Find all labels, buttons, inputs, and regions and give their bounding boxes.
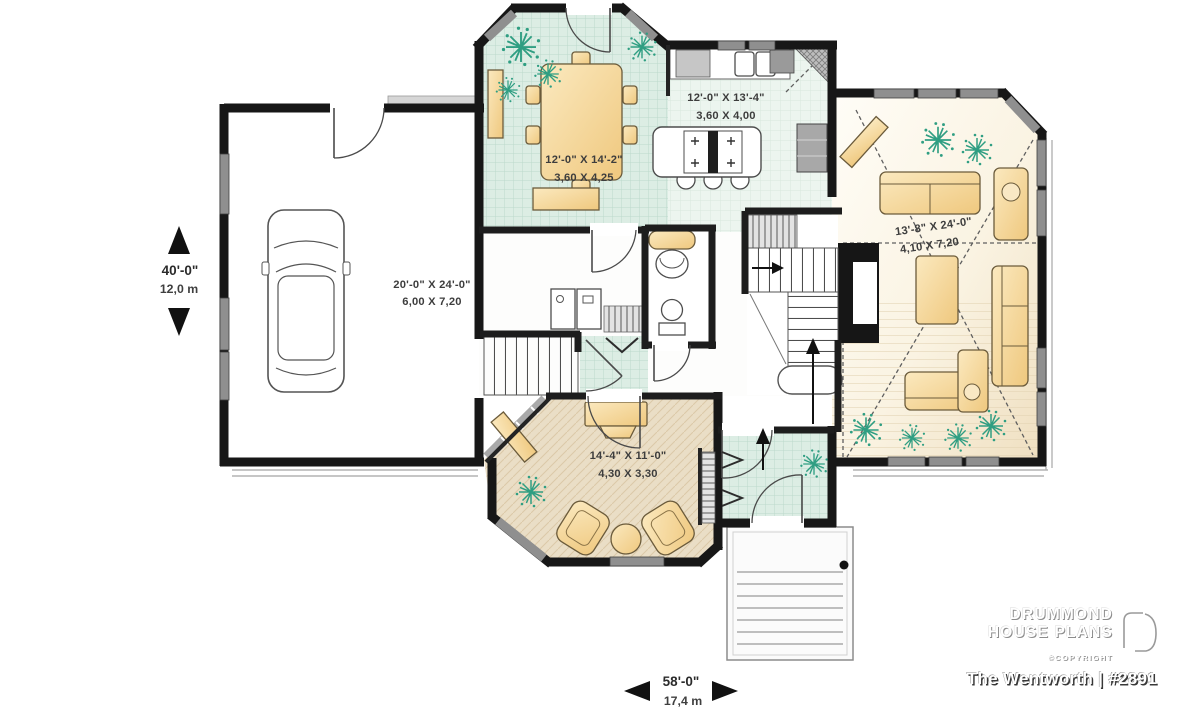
oven	[770, 50, 794, 73]
upper-flight	[747, 248, 838, 292]
company-name-line2: HOUSE PLANS	[988, 624, 1113, 642]
dining-dim-imperial: 12'-0" X 14'-2"	[545, 154, 622, 166]
plan-title: The Wentworth | #2891	[967, 669, 1157, 689]
left-arrow-icon	[624, 681, 650, 701]
toilet-tank	[659, 323, 685, 335]
shelving	[604, 306, 648, 332]
width-m: 17,4 m	[664, 694, 702, 708]
vanity	[649, 231, 695, 249]
armchair-bottom-right	[958, 350, 988, 412]
depth-ft: 40'-0"	[162, 263, 199, 278]
down-arrow-icon	[168, 308, 190, 336]
buffet	[488, 70, 503, 138]
drummond-logo-icon	[1117, 608, 1157, 652]
newel-landing	[778, 366, 842, 394]
refrigerator	[797, 124, 827, 172]
copyright-label: ©COPYRIGHT	[967, 653, 1113, 662]
company-name-line1: DRUMMOND	[988, 606, 1113, 624]
toilet-bowl	[662, 300, 683, 321]
width-ft: 58'-0"	[663, 674, 700, 689]
dryer	[577, 289, 601, 329]
title-block: DRUMMOND HOUSE PLANS ©COPYRIGHT The Went…	[967, 606, 1157, 689]
tv	[600, 426, 636, 438]
family-dim-metric: 4,30 X 3,30	[598, 468, 657, 480]
sink-basin-left	[735, 52, 754, 76]
garage	[262, 210, 350, 392]
coffee-table	[916, 256, 958, 324]
garage-dim-metric: 6,00 X 7,20	[402, 296, 461, 308]
entry-closet	[702, 452, 715, 523]
sofa-right	[992, 266, 1028, 386]
bathroom-sink	[656, 250, 688, 278]
family-dim-imperial: 14'-4" X 11'-0"	[590, 450, 667, 462]
sideboard	[533, 188, 599, 210]
depth-m: 12,0 m	[160, 282, 198, 296]
stair-closet	[747, 215, 797, 248]
company-name: DRUMMOND HOUSE PLANS	[988, 606, 1113, 643]
dishwasher	[676, 50, 710, 77]
car	[262, 210, 350, 392]
round-table	[611, 524, 641, 554]
up-arrow-icon	[168, 226, 190, 254]
armchair-top-right	[994, 168, 1028, 240]
kitchen-dim-imperial: 12'-0" X 13'-4"	[687, 92, 764, 104]
washer	[551, 289, 575, 329]
garage-stairs	[484, 337, 578, 395]
sofa-top	[880, 172, 980, 214]
overall-width-dimension: 58'-0" 17,4 m	[624, 674, 738, 708]
dining-dim-metric: 3,60 X 4,25	[554, 172, 613, 184]
overall-depth-dimension: 40'-0" 12,0 m	[160, 226, 198, 336]
garage-dim-imperial: 20'-0" X 24'-0"	[393, 279, 470, 291]
front-porch	[727, 527, 853, 660]
porch-post	[840, 561, 849, 570]
kitchen-dim-metric: 3,60 X 4,00	[696, 110, 755, 122]
main-staircase	[747, 215, 842, 424]
floor-plan: 20'-0" X 24'-0" 6,00 X 7,20 12'-0" X 14'…	[0, 0, 1200, 711]
right-arrow-icon	[712, 681, 738, 701]
